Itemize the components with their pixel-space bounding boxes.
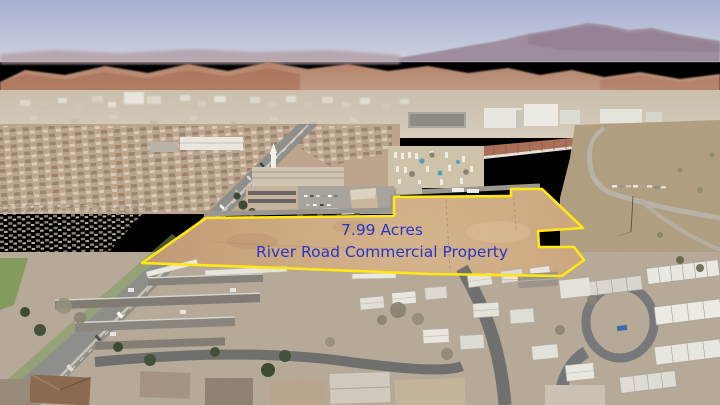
church-steeple [271,152,276,168]
distant-mesas [0,49,400,64]
scene-canvas: 7.99 Acres River Road Commercial Propert… [0,0,720,405]
pool [456,160,460,164]
church-building [252,167,344,186]
aerial-property-photo: 7.99 Acres River Road Commercial Propert… [0,0,720,405]
desert-hillside [560,120,720,265]
rv-park [388,146,484,188]
pool [438,171,443,176]
storage-building [484,137,583,159]
property-name-label: River Road Commercial Property [256,243,508,261]
white-building [559,277,591,298]
pool [419,158,424,163]
office-building [246,186,298,210]
acreage-label: 7.99 Acres [341,221,423,239]
